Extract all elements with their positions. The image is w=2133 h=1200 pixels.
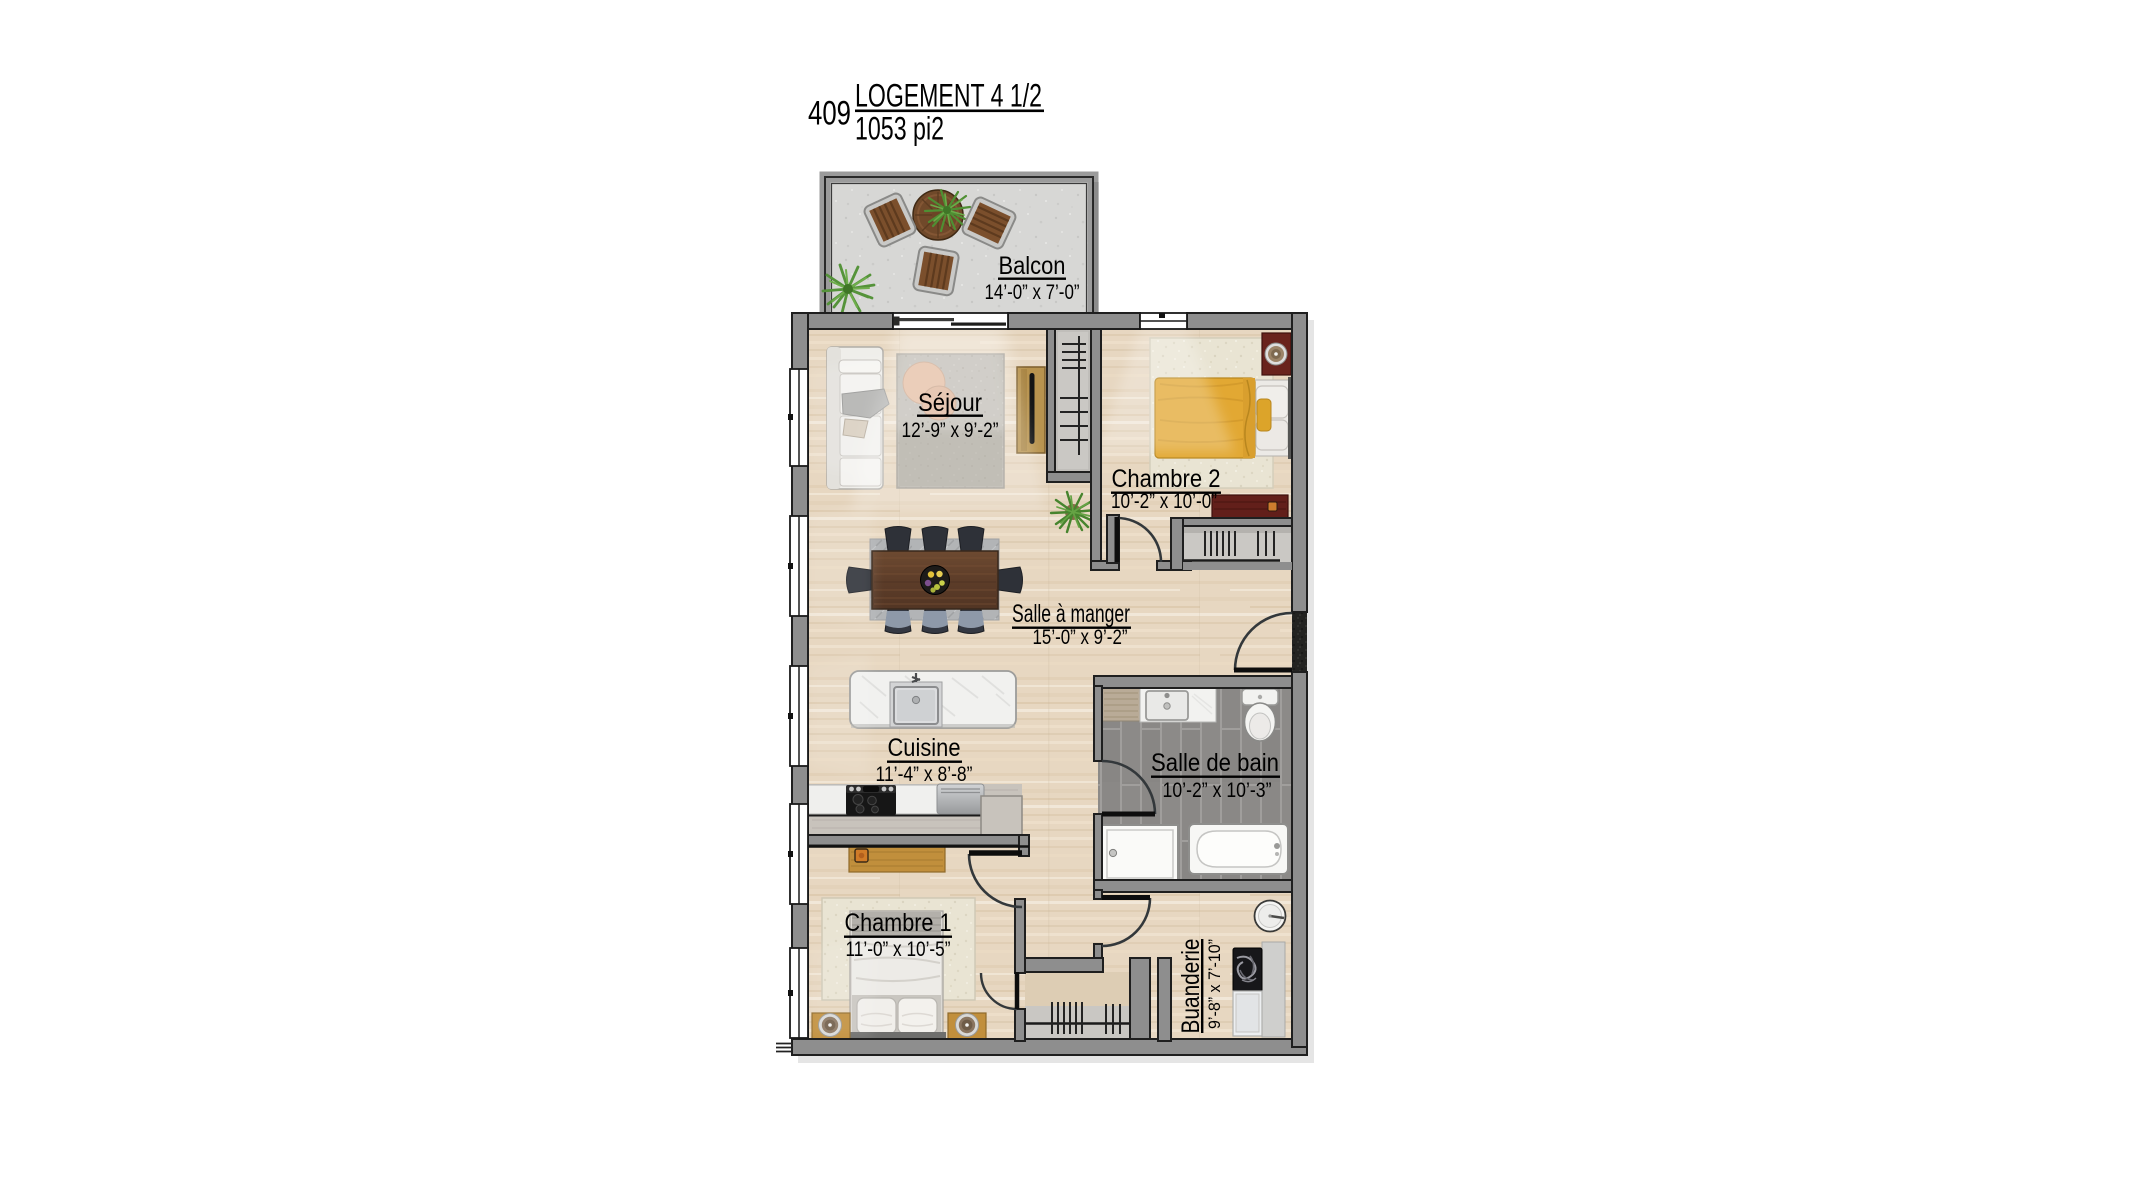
svg-text:Salle de bain: Salle de bain xyxy=(1151,749,1279,777)
svg-text:Buanderie: Buanderie xyxy=(1177,939,1205,1034)
svg-text:15’-0” x 9’-2”: 15’-0” x 9’-2” xyxy=(1033,626,1128,649)
svg-text:11’-0” x 10’-5”: 11’-0” x 10’-5” xyxy=(846,938,951,961)
svg-text:Séjour: Séjour xyxy=(918,389,982,417)
svg-text:LOGEMENT 4 1/2: LOGEMENT 4 1/2 xyxy=(855,78,1042,114)
svg-text:Salle à manger: Salle à manger xyxy=(1012,600,1130,628)
svg-text:10’-2” x 10’-0”: 10’-2” x 10’-0” xyxy=(1111,490,1217,513)
svg-text:1053 pi2: 1053 pi2 xyxy=(855,111,944,147)
svg-text:14’-0” x 7’-0”: 14’-0” x 7’-0” xyxy=(985,281,1080,304)
svg-text:Chambre 1: Chambre 1 xyxy=(845,909,952,937)
svg-text:Balcon: Balcon xyxy=(999,252,1066,280)
svg-text:Chambre 2: Chambre 2 xyxy=(1112,465,1221,493)
svg-text:409: 409 xyxy=(808,95,851,133)
svg-text:10’-2” x 10’-3”: 10’-2” x 10’-3” xyxy=(1163,779,1272,802)
svg-text:Cuisine: Cuisine xyxy=(888,734,961,762)
svg-text:9’-8” x 7’-10”: 9’-8” x 7’-10” xyxy=(1205,939,1224,1029)
svg-text:12’-9” x 9’-2”: 12’-9” x 9’-2” xyxy=(902,419,999,442)
svg-text:11’-4” x 8’-8”: 11’-4” x 8’-8” xyxy=(876,763,973,786)
